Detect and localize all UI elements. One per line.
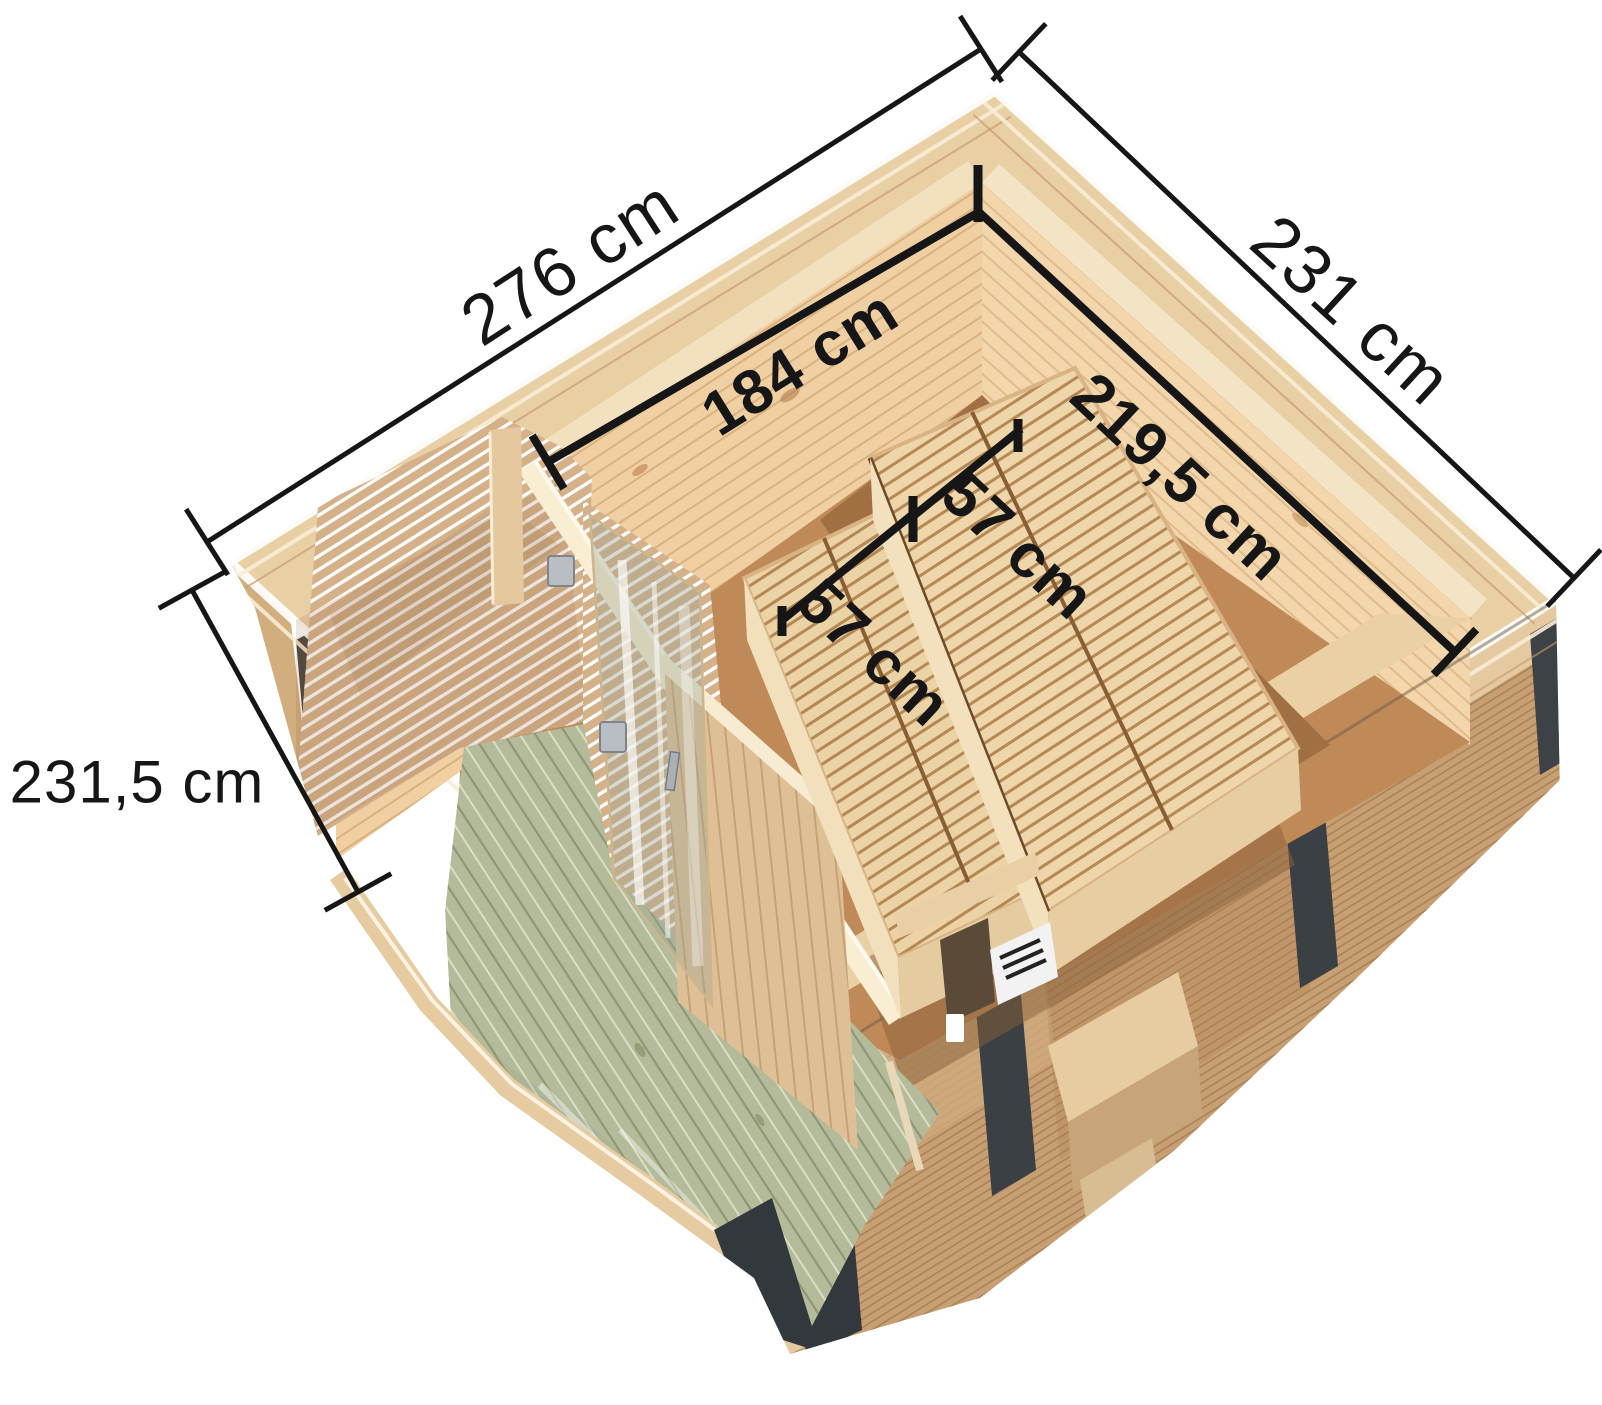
svg-text:231,5 cm: 231,5 cm <box>10 749 265 816</box>
